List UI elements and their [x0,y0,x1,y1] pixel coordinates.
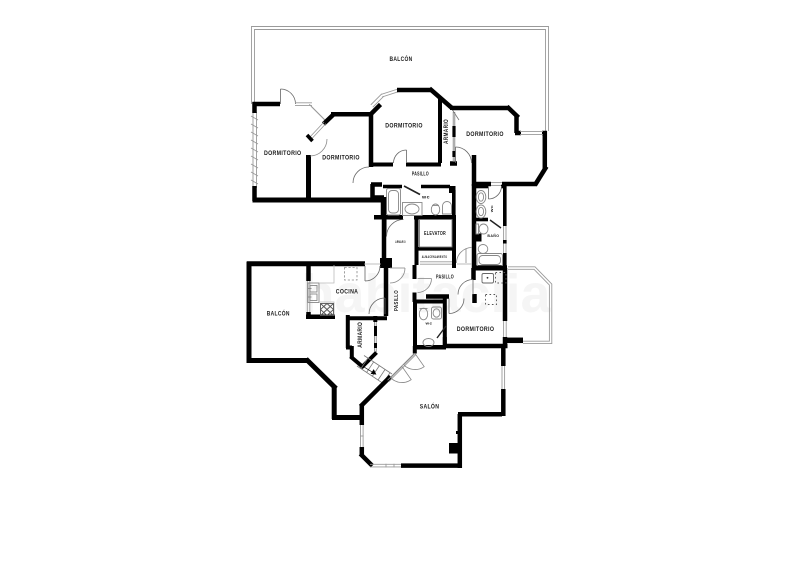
svg-text:PASILLO: PASILLO [412,172,429,178]
svg-text:DORMITORIO: DORMITORIO [264,150,302,157]
svg-text:ALMACENAMIENTO: ALMACENAMIENTO [422,255,448,259]
svg-text:PASILLO: PASILLO [394,290,400,311]
svg-text:wc: wc [421,195,430,200]
svg-text:wc: wc [489,204,494,213]
svg-text:DORMITORIO: DORMITORIO [322,155,360,162]
svg-text:DORMITORIO: DORMITORIO [457,326,495,333]
svg-text:BAÑO: BAÑO [487,233,499,238]
svg-text:SALÓN: SALÓN [420,402,440,411]
svg-text:ARMARIO: ARMARIO [395,240,406,244]
svg-text:BALCÓN: BALCÓN [390,54,413,63]
svg-text:PASILLO: PASILLO [436,275,454,281]
svg-text:BALCÓN: BALCÓN [267,308,290,317]
svg-text:COCINA: COCINA [336,289,359,296]
svg-text:wc: wc [424,321,433,326]
svg-text:DORMITORIO: DORMITORIO [466,131,504,138]
svg-text:ARMARIO: ARMARIO [358,322,364,348]
svg-text:DORMITORIO: DORMITORIO [385,123,423,130]
svg-text:ARMARIO: ARMARIO [444,119,450,144]
svg-text:ELEVATOR: ELEVATOR [424,231,446,237]
